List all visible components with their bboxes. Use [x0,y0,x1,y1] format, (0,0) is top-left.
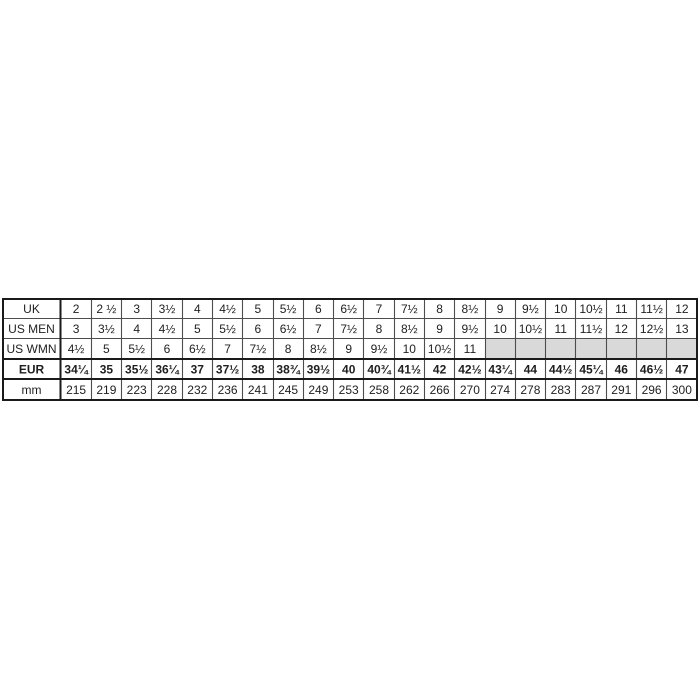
svg-text:278: 278 [520,383,540,397]
svg-text:5: 5 [194,322,201,336]
svg-text:42: 42 [433,362,447,376]
svg-text:mm: mm [22,383,42,397]
svg-text:11½: 11½ [640,302,662,316]
svg-text:10: 10 [403,342,417,356]
svg-text:11: 11 [554,322,567,336]
svg-text:34¼: 34¼ [64,362,88,376]
svg-text:11½: 11½ [580,322,602,336]
svg-text:8: 8 [285,342,292,356]
svg-text:37½: 37½ [216,362,239,376]
svg-text:9: 9 [345,342,352,356]
svg-text:296: 296 [642,383,662,397]
svg-text:10: 10 [493,322,507,336]
svg-text:245: 245 [278,383,298,397]
svg-text:44½: 44½ [549,362,572,376]
svg-text:46: 46 [615,362,629,376]
svg-text:270: 270 [460,383,480,397]
svg-text:249: 249 [308,383,328,397]
svg-text:6: 6 [315,302,322,316]
svg-text:12: 12 [615,322,629,336]
svg-text:4½: 4½ [159,322,176,336]
svg-text:9: 9 [436,322,443,336]
svg-text:EUR: EUR [19,362,45,376]
svg-text:9: 9 [497,302,504,316]
svg-text:5: 5 [255,302,262,316]
svg-text:236: 236 [218,383,238,397]
svg-text:6: 6 [164,342,171,356]
svg-text:47: 47 [675,362,689,376]
svg-text:7: 7 [315,322,322,336]
svg-text:4½: 4½ [219,302,236,316]
svg-text:7: 7 [376,302,383,316]
svg-text:274: 274 [490,383,510,397]
svg-text:12½: 12½ [640,322,663,336]
svg-text:7½: 7½ [340,322,357,336]
svg-text:6½: 6½ [189,342,206,356]
svg-text:37: 37 [191,362,205,376]
svg-text:291: 291 [611,383,631,397]
svg-text:266: 266 [430,383,450,397]
svg-text:5½: 5½ [219,322,236,336]
svg-text:6½: 6½ [340,302,357,316]
svg-text:8: 8 [376,322,383,336]
svg-text:228: 228 [157,383,177,397]
svg-text:283: 283 [551,383,571,397]
svg-text:UK: UK [23,302,40,316]
svg-text:4: 4 [133,322,140,336]
svg-text:35: 35 [100,362,114,376]
svg-text:9½: 9½ [522,302,539,316]
svg-text:7½: 7½ [250,342,267,356]
svg-text:3½: 3½ [98,322,115,336]
svg-text:45¼: 45¼ [579,362,603,376]
svg-text:44: 44 [524,362,538,376]
svg-text:9½: 9½ [371,342,388,356]
svg-text:3½: 3½ [159,302,176,316]
svg-text:38: 38 [251,362,265,376]
svg-text:241: 241 [248,383,268,397]
svg-text:2: 2 [73,302,80,316]
svg-text:258: 258 [369,383,389,397]
svg-text:2 ½: 2 ½ [96,302,116,316]
svg-text:10½: 10½ [428,342,451,356]
svg-text:46½: 46½ [640,362,663,376]
svg-text:40: 40 [342,362,356,376]
svg-text:223: 223 [127,383,147,397]
svg-text:253: 253 [339,383,359,397]
svg-text:5½: 5½ [128,342,145,356]
svg-text:3: 3 [73,322,80,336]
svg-text:11: 11 [615,302,628,316]
svg-text:215: 215 [66,383,86,397]
svg-text:232: 232 [187,383,207,397]
svg-text:6: 6 [255,322,262,336]
svg-text:12: 12 [675,302,689,316]
svg-text:7: 7 [224,342,231,356]
svg-text:8½: 8½ [462,302,479,316]
svg-text:39½: 39½ [307,362,330,376]
svg-text:8½: 8½ [310,342,327,356]
svg-text:43¼: 43¼ [488,362,512,376]
svg-text:7½: 7½ [401,302,418,316]
svg-text:41½: 41½ [398,362,421,376]
svg-text:13: 13 [675,322,689,336]
svg-text:36¼: 36¼ [155,362,179,376]
svg-text:11: 11 [464,342,477,356]
svg-text:3: 3 [133,302,140,316]
svg-text:35½: 35½ [125,362,148,376]
svg-text:42½: 42½ [458,362,481,376]
svg-text:6½: 6½ [280,322,297,336]
svg-text:4: 4 [194,302,201,316]
svg-text:4½: 4½ [68,342,85,356]
svg-text:40¾: 40¾ [367,362,391,376]
svg-text:300: 300 [672,383,692,397]
svg-text:262: 262 [399,383,419,397]
svg-text:10½: 10½ [579,302,602,316]
svg-text:10½: 10½ [519,322,542,336]
svg-text:219: 219 [96,383,116,397]
svg-text:9½: 9½ [462,322,479,336]
svg-text:US WMN: US WMN [7,342,57,356]
svg-text:5½: 5½ [280,302,297,316]
svg-text:US MEN: US MEN [8,322,55,336]
svg-text:38¾: 38¾ [276,362,300,376]
svg-text:10: 10 [554,302,568,316]
svg-text:287: 287 [581,383,601,397]
svg-text:8: 8 [436,302,443,316]
svg-text:8½: 8½ [401,322,418,336]
svg-text:5: 5 [103,342,110,356]
